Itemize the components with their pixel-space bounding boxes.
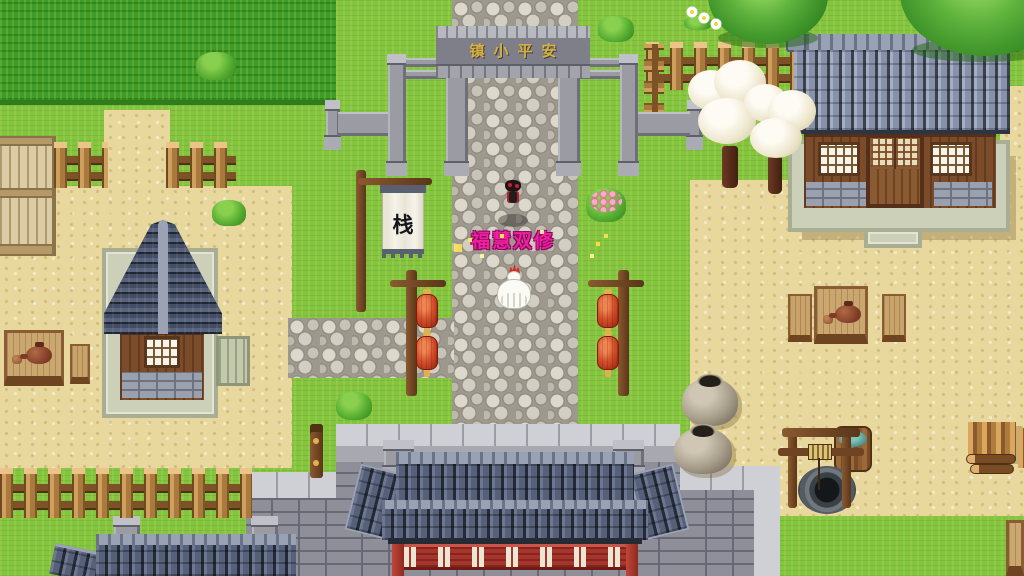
wood-pile-partial xyxy=(1018,428,1024,468)
banner-arm xyxy=(358,178,432,185)
left-house-stone-base xyxy=(122,372,202,398)
plank-shed xyxy=(0,136,56,256)
wall-cap xyxy=(246,472,338,500)
right-house-window-left xyxy=(818,142,860,176)
wall-right xyxy=(680,466,780,576)
red-lantern xyxy=(416,294,438,328)
well-top-beam xyxy=(782,428,860,437)
plaque-text: 镇小平安 xyxy=(436,38,590,64)
pink-flowers xyxy=(590,190,622,212)
well-leg xyxy=(788,430,797,508)
teapot xyxy=(835,305,861,323)
banner-top-bar xyxy=(380,185,426,193)
gate-stone-lintel xyxy=(404,570,626,576)
player-body xyxy=(507,191,519,203)
well-leg xyxy=(842,430,851,508)
door-planks xyxy=(871,169,919,204)
jar-mouth xyxy=(697,374,723,387)
lantern-crossbar xyxy=(588,280,644,287)
chicken-npc[interactable] xyxy=(494,264,534,312)
stone-archway: 镇小平安 xyxy=(320,20,712,180)
gate-roof-lower xyxy=(382,509,648,540)
flower xyxy=(686,6,698,18)
shed-frame-top xyxy=(0,136,52,146)
gate-roof-upper xyxy=(396,464,634,502)
shed-frame-mid xyxy=(0,188,52,198)
pink-flower-bush xyxy=(586,188,626,222)
red-lantern xyxy=(597,336,619,370)
right-house-base-right xyxy=(934,182,992,206)
gate-red-pillar-left xyxy=(392,544,404,576)
temple-gate xyxy=(350,442,682,576)
clay-jar[interactable] xyxy=(674,428,732,474)
door-lattice-left xyxy=(871,139,894,167)
blossom-cluster xyxy=(750,118,802,158)
left-house-roof-ridge xyxy=(158,220,168,334)
blossom-tree-right xyxy=(742,74,816,194)
red-lantern xyxy=(416,336,438,370)
red-lantern xyxy=(597,294,619,328)
door-lattice-right xyxy=(896,139,919,167)
left-house-window xyxy=(144,336,180,368)
flower xyxy=(698,12,710,24)
fence-topleft-a xyxy=(54,142,108,188)
lantern-pole xyxy=(406,270,417,396)
log xyxy=(970,464,1014,474)
teapot xyxy=(26,346,52,364)
lantern-crossbar xyxy=(390,280,446,287)
well-rope-coil xyxy=(808,444,832,460)
tall-grass-field xyxy=(0,0,336,105)
stool xyxy=(70,344,90,384)
arch-outer-pillar-left xyxy=(388,58,406,176)
plaque-base xyxy=(436,64,590,78)
chicken-tail-feathers xyxy=(501,293,527,307)
banner-pole xyxy=(356,170,366,312)
shed-frame-bottom xyxy=(0,244,52,256)
log xyxy=(966,454,1016,464)
sand-path-topleft xyxy=(104,110,170,192)
lantern-pole xyxy=(618,270,629,396)
bush xyxy=(598,16,634,42)
right-house-step xyxy=(864,228,922,248)
well[interactable] xyxy=(778,424,878,516)
game-viewport: 镇小平安 xyxy=(0,0,1024,576)
yellow-flower-clump xyxy=(682,4,726,34)
corner-table-partial xyxy=(1006,520,1024,576)
well-rope xyxy=(818,458,820,490)
bush xyxy=(336,392,372,420)
stool xyxy=(788,294,812,342)
tea-table-right xyxy=(814,286,868,344)
player-character[interactable] xyxy=(496,178,530,230)
stool xyxy=(882,294,906,342)
clay-jar[interactable] xyxy=(682,378,738,426)
arch-plaque: 镇小平安 xyxy=(436,26,590,76)
gate-lattice-frieze xyxy=(396,544,634,570)
fence-topleft-b xyxy=(166,142,236,188)
gate-red-pillar-right xyxy=(626,544,638,576)
banner-fringe xyxy=(382,254,424,258)
lantern-post-right xyxy=(588,262,644,402)
bush xyxy=(196,52,236,80)
jar-mouth xyxy=(690,424,716,437)
sparkle-particles xyxy=(500,234,504,238)
banner-character: 栈 xyxy=(383,209,423,239)
tea-table-left xyxy=(4,330,64,386)
right-house-door[interactable] xyxy=(866,134,924,208)
player-name-text: 福慧双修 xyxy=(471,230,555,252)
right-house-window-right xyxy=(930,142,972,176)
fence-bottom-left xyxy=(0,468,252,518)
player-name-tag: 福慧双修 xyxy=(440,226,586,258)
arch-outer-pillar-right xyxy=(620,58,638,176)
small-gate-roof xyxy=(96,545,296,576)
arch-wing-beam-left xyxy=(338,112,390,136)
flower xyxy=(710,18,722,30)
wooden-post xyxy=(310,424,323,478)
post-knobs xyxy=(313,438,319,444)
chicken-body xyxy=(497,279,531,309)
arch-wing-beam-right xyxy=(636,112,690,136)
wood-pile xyxy=(966,422,1018,474)
lantern-post-left xyxy=(390,262,446,402)
left-house-awning xyxy=(216,336,250,386)
banner-flag: 栈 xyxy=(380,185,426,259)
blossom-trunk xyxy=(722,146,738,188)
banner-cloth: 栈 xyxy=(382,193,424,251)
blossom-trunk xyxy=(768,156,782,194)
small-gate-bottom-left xyxy=(50,518,300,576)
right-house-roof xyxy=(794,50,1010,134)
bush xyxy=(212,200,246,226)
wall-corner-column xyxy=(754,466,780,576)
